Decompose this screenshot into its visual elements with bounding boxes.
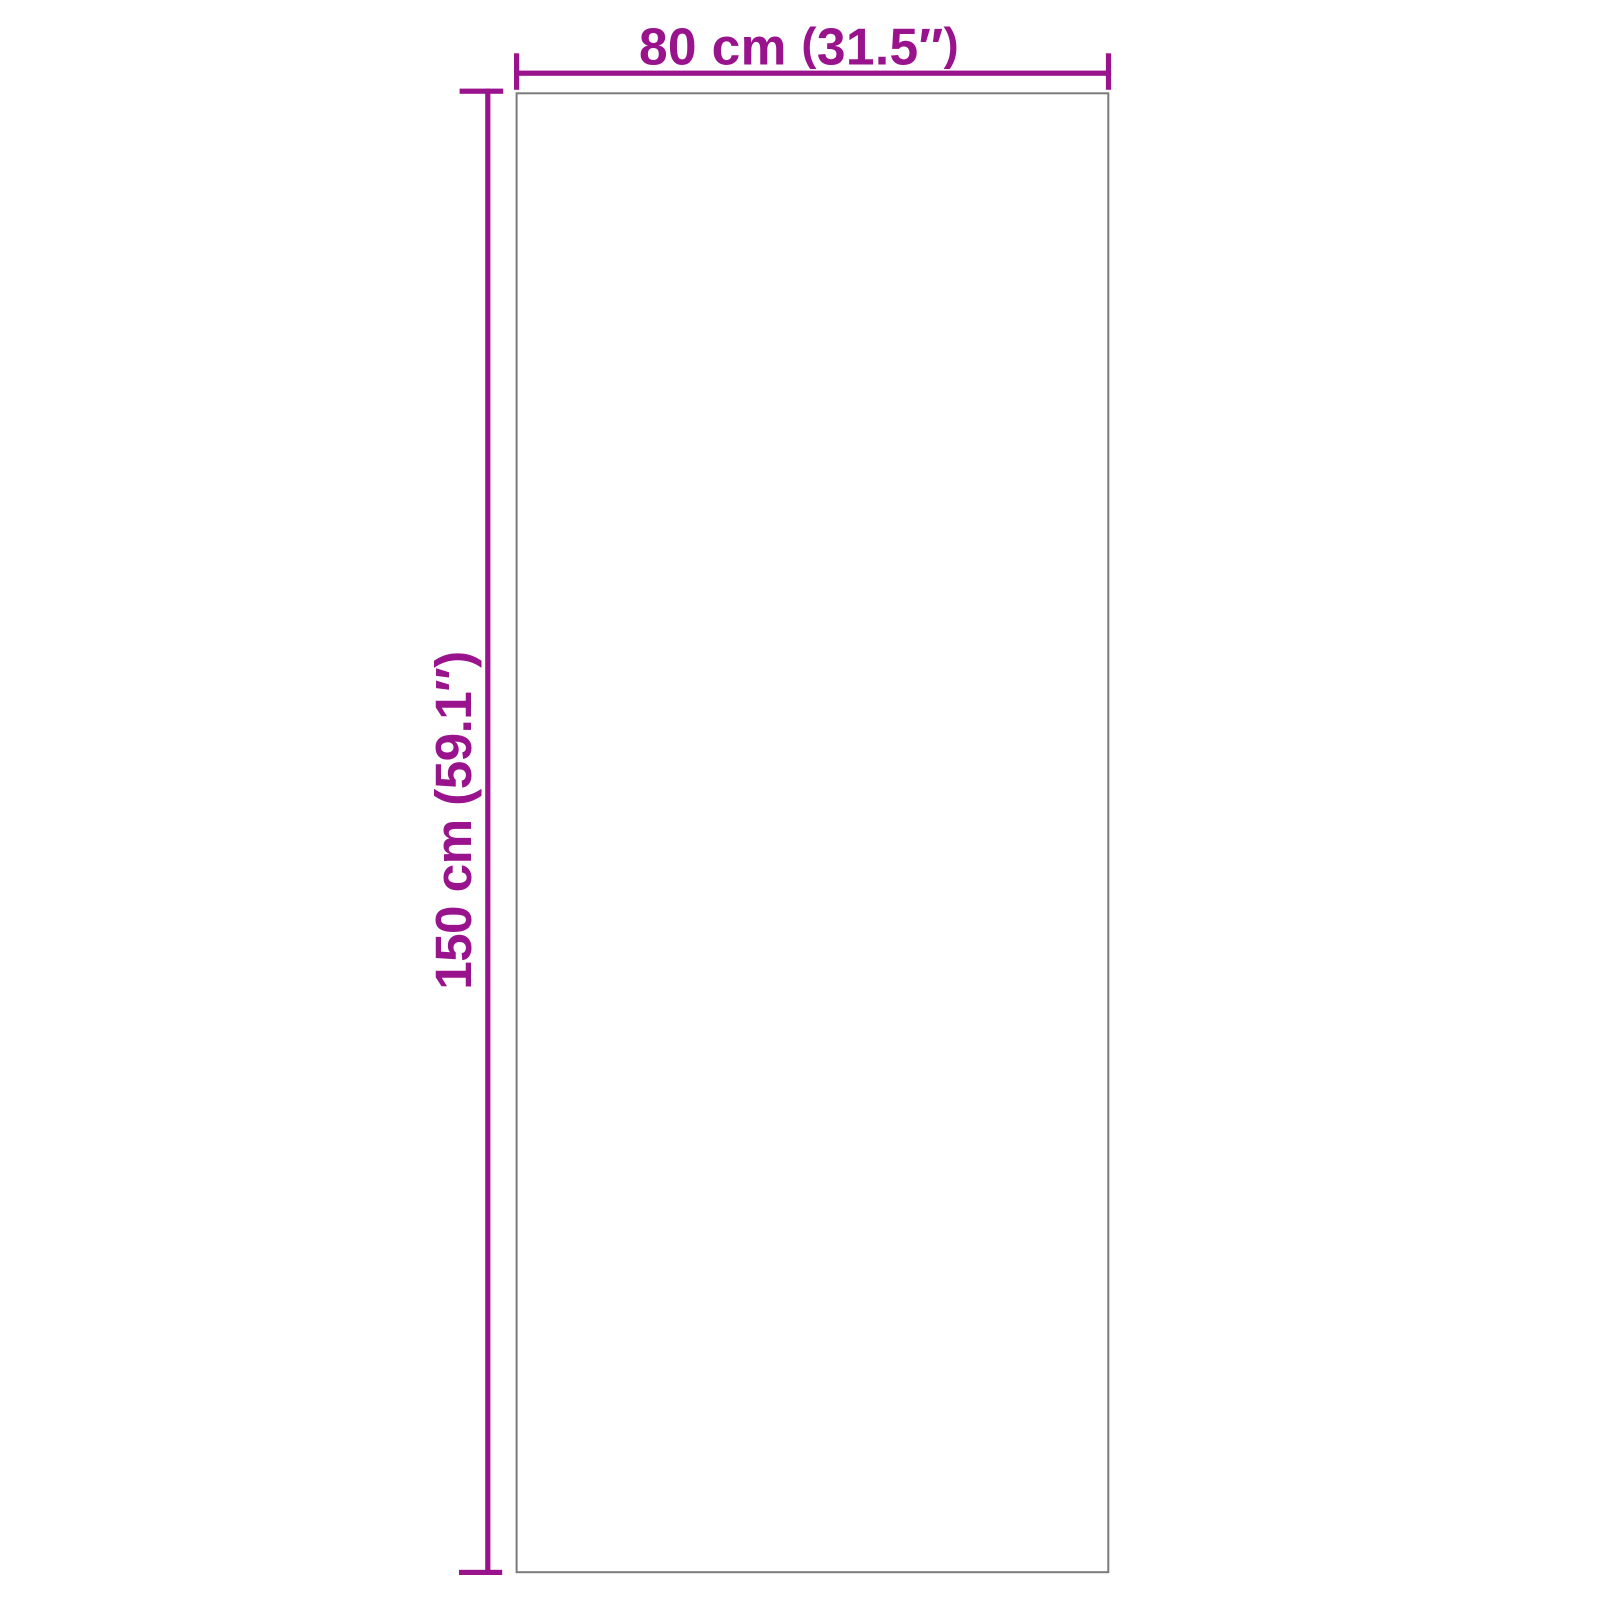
svg-text:80 cm (31.5″): 80 cm (31.5″) [639, 18, 959, 76]
svg-text:150 cm (59.1″): 150 cm (59.1″) [425, 651, 482, 989]
